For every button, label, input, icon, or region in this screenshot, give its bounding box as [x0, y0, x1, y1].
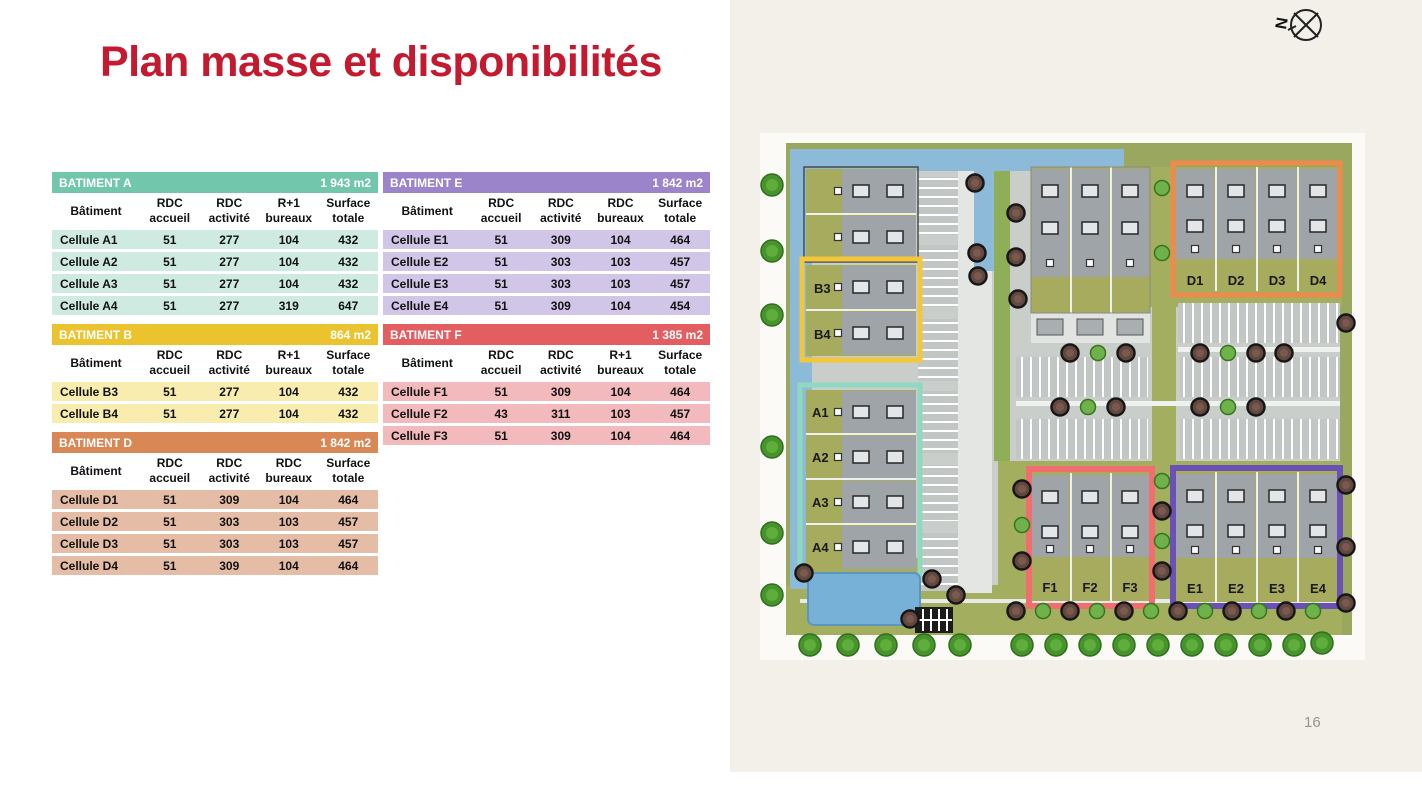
cell: 457 — [650, 255, 710, 269]
cell: 104 — [591, 385, 651, 399]
column-label: Bâtiment — [70, 204, 121, 219]
cell: 454 — [650, 299, 710, 313]
column-label: RDC — [548, 348, 574, 363]
table-row: Cellule D351303103457 — [52, 534, 378, 553]
cell: 51 — [140, 537, 200, 551]
cell: 432 — [319, 233, 379, 247]
cell-batiment: Cellule A3 — [52, 277, 140, 291]
column-header: Surfacetotale — [650, 347, 710, 379]
cell: 104 — [591, 299, 651, 313]
column-header: RDCactivité — [200, 195, 260, 227]
column-label: RDC — [548, 196, 574, 211]
tables-right-column: BATIMENT E 1 842 m2 Bâtiment RDCaccueil … — [383, 172, 710, 454]
cell-batiment: Cellule E3 — [383, 277, 471, 291]
cell: 104 — [259, 233, 319, 247]
column-label: totale — [332, 363, 364, 378]
page-title: Plan masse et disponibilités — [100, 38, 662, 87]
column-header: RDCbureaux — [259, 455, 319, 487]
table-b-header: BATIMENT B 864 m2 — [52, 324, 378, 345]
column-label: Surface — [326, 456, 370, 471]
column-header: Bâtiment — [52, 455, 140, 487]
cell: 457 — [319, 537, 379, 551]
column-header: Bâtiment — [52, 195, 140, 227]
column-label: RDC — [157, 196, 183, 211]
building-f: F1 F2 F3 — [1029, 469, 1152, 606]
cell-batiment: Cellule A2 — [52, 255, 140, 269]
utility-structure — [915, 607, 953, 633]
column-label: RDC — [157, 456, 183, 471]
column-label: Bâtiment — [70, 464, 121, 479]
column-label: activité — [209, 363, 250, 378]
building-e: E1 E2 E3 E4 — [1173, 468, 1340, 606]
table-row: Cellule E151309104464 — [383, 230, 710, 249]
table-a-area: 1 943 m2 — [320, 176, 371, 190]
cell: 103 — [591, 255, 651, 269]
table-row: Cellule A151277104432 — [52, 230, 378, 249]
column-header: RDCbureaux — [591, 195, 651, 227]
building-middle — [1031, 167, 1150, 343]
cell: 309 — [531, 429, 591, 443]
cell: 104 — [259, 385, 319, 399]
cell: 51 — [140, 407, 200, 421]
cell: 51 — [471, 277, 531, 291]
cell: 432 — [319, 277, 379, 291]
cell: 432 — [319, 385, 379, 399]
unit-label-e3: E3 — [1269, 581, 1285, 596]
cell: 464 — [650, 233, 710, 247]
unit-label-f2: F2 — [1082, 580, 1097, 595]
column-label: Surface — [326, 348, 370, 363]
cell: 303 — [200, 515, 260, 529]
table-e-column-headers: Bâtiment RDCaccueil RDCactivité RDCburea… — [383, 193, 710, 230]
column-label: Bâtiment — [401, 204, 452, 219]
table-b-column-headers: Bâtiment RDCaccueil RDCactivité R+1burea… — [52, 345, 378, 382]
cell: 51 — [140, 233, 200, 247]
table-d-area: 1 842 m2 — [320, 436, 371, 450]
cell: 51 — [471, 385, 531, 399]
column-header: Bâtiment — [383, 195, 471, 227]
table-row: Cellule A251277104432 — [52, 252, 378, 271]
cell: 309 — [531, 385, 591, 399]
unit-label-d4: D4 — [1310, 273, 1327, 288]
cell: 303 — [200, 537, 260, 551]
cell: 51 — [140, 559, 200, 573]
column-header: RDCaccueil — [140, 347, 200, 379]
unit-label-a1: A1 — [812, 405, 829, 420]
cell: 432 — [319, 407, 379, 421]
table-row: Cellule A451277319647 — [52, 296, 378, 315]
column-label: bureaux — [597, 211, 644, 226]
unit-label-b3: B3 — [814, 281, 831, 296]
north-compass-icon: N — [1260, 0, 1334, 54]
table-row: Cellule E351303103457 — [383, 274, 710, 293]
unit-label-d3: D3 — [1269, 273, 1286, 288]
cell-batiment: Cellule D3 — [52, 537, 140, 551]
column-header: R+1bureaux — [259, 195, 319, 227]
table-a-column-headers: Bâtiment RDCaccueil RDCactivité R+1burea… — [52, 193, 378, 230]
column-header: R+1bureaux — [259, 347, 319, 379]
column-header: RDCaccueil — [471, 347, 531, 379]
column-label: R+1 — [278, 348, 300, 363]
cell: 51 — [471, 299, 531, 313]
table-e-title: BATIMENT E — [390, 176, 462, 190]
table-row: Cellule F351309104464 — [383, 426, 710, 445]
cell-batiment: Cellule F3 — [383, 429, 471, 443]
cell: 432 — [319, 255, 379, 269]
cell: 104 — [591, 429, 651, 443]
table-batiment-b: BATIMENT B 864 m2 Bâtiment RDCaccueil RD… — [52, 324, 378, 423]
table-row: Cellule D151309104464 — [52, 490, 378, 509]
table-batiment-e: BATIMENT E 1 842 m2 Bâtiment RDCaccueil … — [383, 172, 710, 315]
column-label: R+1 — [278, 196, 300, 211]
cell: 51 — [140, 493, 200, 507]
unit-label-f1: F1 — [1042, 580, 1057, 595]
cell-batiment: Cellule E1 — [383, 233, 471, 247]
cell: 647 — [319, 299, 379, 313]
table-f-title: BATIMENT F — [390, 328, 462, 342]
building-topleft — [804, 167, 918, 262]
cell: 104 — [259, 559, 319, 573]
unit-label-a3: A3 — [812, 495, 829, 510]
cell-batiment: Cellule F2 — [383, 407, 471, 421]
column-label: totale — [332, 471, 364, 486]
table-a-title: BATIMENT A — [59, 176, 132, 190]
unit-label-e1: E1 — [1187, 581, 1203, 596]
table-batiment-f: BATIMENT F 1 385 m2 Bâtiment RDCaccueil … — [383, 324, 710, 445]
cell: 319 — [259, 299, 319, 313]
cell: 309 — [200, 559, 260, 573]
table-batiment-a: BATIMENT A 1 943 m2 Bâtiment RDCaccueil … — [52, 172, 378, 315]
cell: 464 — [319, 493, 379, 507]
cell: 51 — [471, 255, 531, 269]
cell: 457 — [650, 407, 710, 421]
cell: 464 — [650, 429, 710, 443]
column-label: accueil — [481, 363, 522, 378]
cell-batiment: Cellule D2 — [52, 515, 140, 529]
page-number: 16 — [1304, 714, 1321, 731]
table-e-area: 1 842 m2 — [652, 176, 703, 190]
cell: 43 — [471, 407, 531, 421]
cell: 51 — [140, 299, 200, 313]
column-label: totale — [332, 211, 364, 226]
table-b-area: 864 m2 — [330, 328, 371, 342]
column-label: bureaux — [265, 211, 312, 226]
column-label: activité — [209, 471, 250, 486]
column-label: accueil — [149, 211, 190, 226]
table-d-title: BATIMENT D — [59, 436, 132, 450]
cell: 103 — [591, 407, 651, 421]
cell: 51 — [140, 255, 200, 269]
cell-batiment: Cellule B4 — [52, 407, 140, 421]
cell: 277 — [200, 255, 260, 269]
unit-label-f3: F3 — [1122, 580, 1137, 595]
column-label: accueil — [149, 471, 190, 486]
column-label: RDC — [608, 196, 634, 211]
cell: 309 — [531, 233, 591, 247]
cell: 103 — [259, 515, 319, 529]
column-label: Surface — [658, 196, 702, 211]
cell: 104 — [259, 407, 319, 421]
cell: 311 — [531, 407, 591, 421]
cell: 457 — [319, 515, 379, 529]
cell: 277 — [200, 233, 260, 247]
column-label: bureaux — [265, 363, 312, 378]
column-header: RDCaccueil — [140, 455, 200, 487]
column-label: RDC — [216, 456, 242, 471]
table-d-header: BATIMENT D 1 842 m2 — [52, 432, 378, 453]
column-header: RDCactivité — [531, 195, 591, 227]
column-label: activité — [209, 211, 250, 226]
cell: 464 — [650, 385, 710, 399]
building-a: A1 A2 A3 A4 — [800, 385, 920, 575]
table-row: Cellule B451277104432 — [52, 404, 378, 423]
cell: 104 — [591, 233, 651, 247]
table-row: Cellule A351277104432 — [52, 274, 378, 293]
cell-batiment: Cellule D1 — [52, 493, 140, 507]
column-header: RDCaccueil — [140, 195, 200, 227]
column-label: activité — [540, 363, 581, 378]
table-row: Cellule F243311103457 — [383, 404, 710, 423]
unit-label-e4: E4 — [1310, 581, 1327, 596]
cell: 277 — [200, 277, 260, 291]
column-header: RDCactivité — [200, 455, 260, 487]
unit-label-d1: D1 — [1187, 273, 1204, 288]
column-label: Bâtiment — [401, 356, 452, 371]
cell: 277 — [200, 407, 260, 421]
column-label: RDC — [488, 348, 514, 363]
table-b-title: BATIMENT B — [59, 328, 132, 342]
table-row: Cellule D451309104464 — [52, 556, 378, 575]
unit-label-e2: E2 — [1228, 581, 1244, 596]
column-label: RDC — [276, 456, 302, 471]
column-label: accueil — [481, 211, 522, 226]
cell: 277 — [200, 385, 260, 399]
column-header: RDCactivité — [200, 347, 260, 379]
cell: 104 — [259, 493, 319, 507]
cell-batiment: Cellule A4 — [52, 299, 140, 313]
tables-left-column: BATIMENT A 1 943 m2 Bâtiment RDCaccueil … — [52, 172, 378, 584]
cell-batiment: Cellule B3 — [52, 385, 140, 399]
column-label: RDC — [488, 196, 514, 211]
unit-label-a4: A4 — [812, 540, 829, 555]
cell-batiment: Cellule A1 — [52, 233, 140, 247]
cell-batiment: Cellule D4 — [52, 559, 140, 573]
cell: 51 — [140, 515, 200, 529]
column-header: R+1bureaux — [591, 347, 651, 379]
cell: 303 — [531, 277, 591, 291]
cell: 103 — [591, 277, 651, 291]
column-label: bureaux — [597, 363, 644, 378]
cell: 309 — [200, 493, 260, 507]
column-label: Surface — [658, 348, 702, 363]
column-label: RDC — [216, 196, 242, 211]
cell-batiment: Cellule E4 — [383, 299, 471, 313]
table-f-area: 1 385 m2 — [652, 328, 703, 342]
table-f-column-headers: Bâtiment RDCaccueil RDCactivité R+1burea… — [383, 345, 710, 382]
cell: 104 — [259, 277, 319, 291]
column-header: RDCactivité — [531, 347, 591, 379]
table-e-header: BATIMENT E 1 842 m2 — [383, 172, 710, 193]
cell: 51 — [471, 233, 531, 247]
table-f-header: BATIMENT F 1 385 m2 — [383, 324, 710, 345]
column-label: Bâtiment — [70, 356, 121, 371]
site-plan-map: B3 B4 A1 A2 A3 A4 — [760, 133, 1365, 660]
cell: 309 — [531, 299, 591, 313]
column-header: RDCaccueil — [471, 195, 531, 227]
cell-batiment: Cellule F1 — [383, 385, 471, 399]
table-row: Cellule E451309104454 — [383, 296, 710, 315]
cell: 277 — [200, 299, 260, 313]
table-batiment-d: BATIMENT D 1 842 m2 Bâtiment RDCaccueil … — [52, 432, 378, 575]
cell: 51 — [140, 277, 200, 291]
column-header: Bâtiment — [383, 347, 471, 379]
column-header: Surfacetotale — [319, 195, 379, 227]
unit-label-b4: B4 — [814, 327, 831, 342]
table-row: Cellule F151309104464 — [383, 382, 710, 401]
compass-north-label: N — [1273, 16, 1292, 30]
table-d-column-headers: Bâtiment RDCaccueil RDCactivité RDCburea… — [52, 453, 378, 490]
table-row: Cellule D251303103457 — [52, 512, 378, 531]
column-label: totale — [664, 211, 696, 226]
cell: 303 — [531, 255, 591, 269]
column-label: bureaux — [265, 471, 312, 486]
column-header: Surfacetotale — [650, 195, 710, 227]
building-b: B3 B4 — [802, 259, 920, 360]
cell: 103 — [259, 537, 319, 551]
column-label: R+1 — [609, 348, 631, 363]
column-header: Bâtiment — [52, 347, 140, 379]
cell: 104 — [259, 255, 319, 269]
cell-batiment: Cellule E2 — [383, 255, 471, 269]
column-label: Surface — [326, 196, 370, 211]
column-label: RDC — [216, 348, 242, 363]
table-a-header: BATIMENT A 1 943 m2 — [52, 172, 378, 193]
cell: 464 — [319, 559, 379, 573]
column-label: RDC — [157, 348, 183, 363]
unit-label-d2: D2 — [1228, 273, 1245, 288]
column-header: Surfacetotale — [319, 347, 379, 379]
column-label: activité — [540, 211, 581, 226]
unit-label-a2: A2 — [812, 450, 829, 465]
cell: 51 — [140, 385, 200, 399]
column-label: accueil — [149, 363, 190, 378]
column-label: totale — [664, 363, 696, 378]
table-row: Cellule B351277104432 — [52, 382, 378, 401]
table-row: Cellule E251303103457 — [383, 252, 710, 271]
cell: 51 — [471, 429, 531, 443]
column-header: Surfacetotale — [319, 455, 379, 487]
building-d: D1 D2 D3 D4 — [1173, 163, 1340, 295]
cell: 457 — [650, 277, 710, 291]
